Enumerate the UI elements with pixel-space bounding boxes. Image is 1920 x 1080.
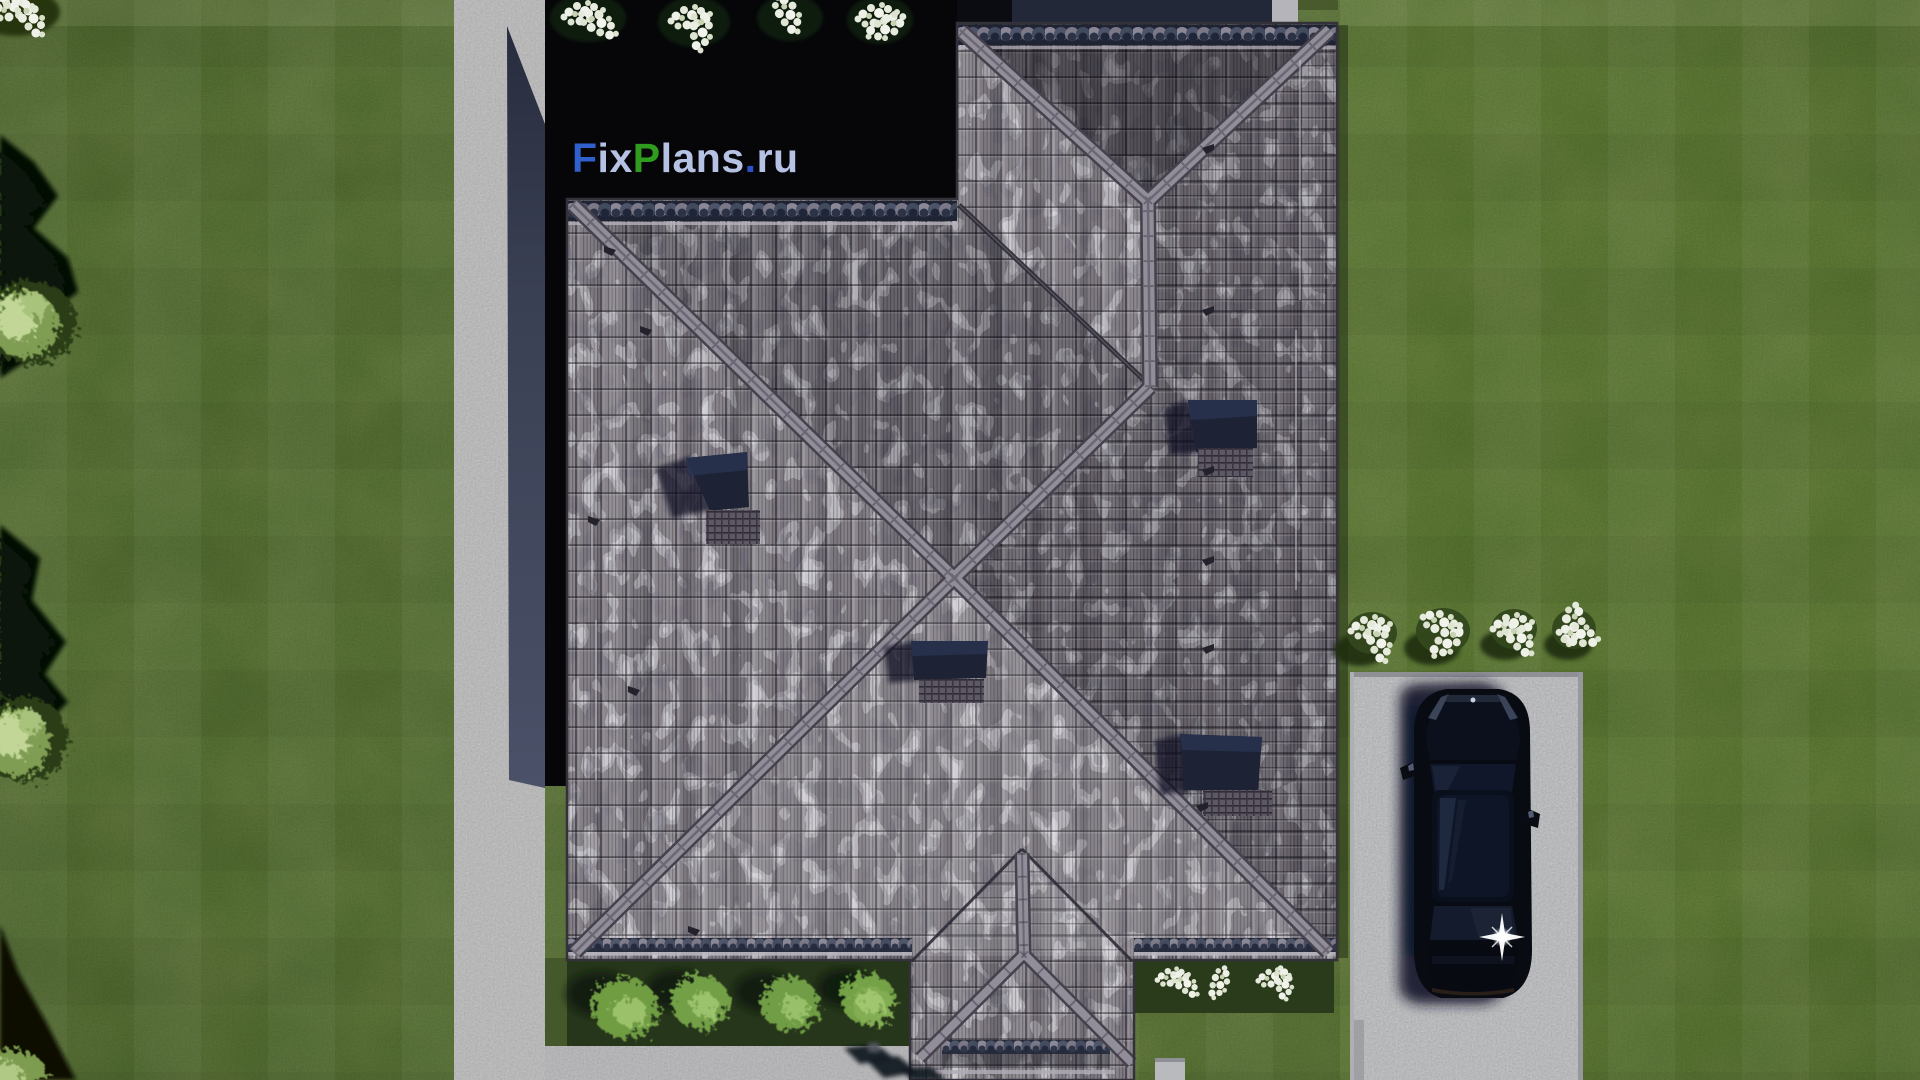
svg-text:FixPlans.ru: FixPlans.ru xyxy=(572,135,799,181)
